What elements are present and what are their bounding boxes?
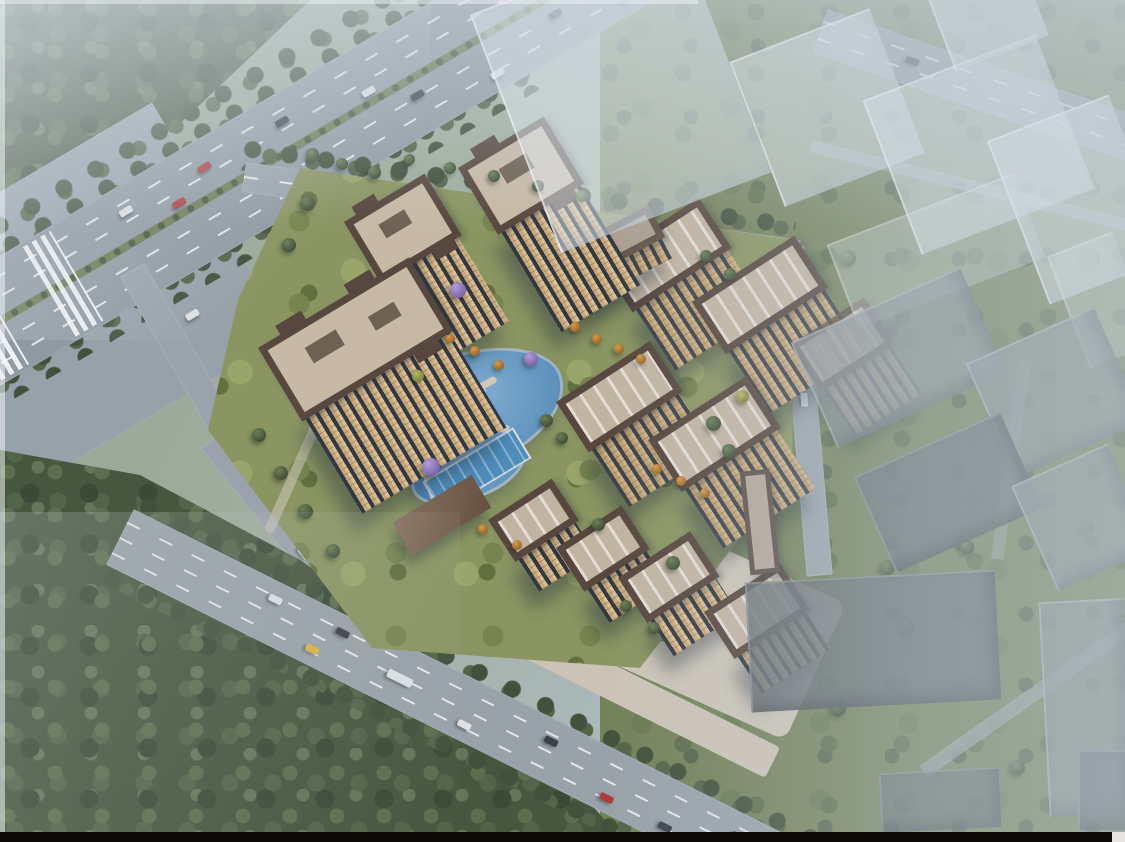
autumn-tree [470, 346, 480, 356]
haze-overlay-right [605, 0, 1125, 832]
tree [592, 518, 605, 531]
autumn-tree [592, 334, 602, 344]
tree [556, 432, 568, 444]
top-edge-strip [0, 0, 698, 4]
tree [412, 370, 424, 382]
flowering-tree [524, 352, 538, 366]
autumn-tree [570, 322, 580, 332]
autumn-tree [478, 524, 488, 534]
tree [540, 414, 553, 427]
bottom-right-corner [1112, 832, 1125, 842]
tree [274, 466, 288, 480]
haze-overlay-bottomleft [0, 512, 460, 832]
tree [252, 428, 266, 442]
autumn-tree [512, 540, 522, 550]
left-edge-strip [0, 0, 5, 842]
flowering-tree [422, 458, 440, 476]
haze-overlay-topleft [0, 0, 430, 340]
autumn-tree [446, 334, 455, 343]
black-letterbox-bar [0, 832, 1112, 842]
aerial-rendering [0, 0, 1125, 842]
autumn-tree [494, 360, 504, 370]
flowering-tree [450, 282, 466, 298]
